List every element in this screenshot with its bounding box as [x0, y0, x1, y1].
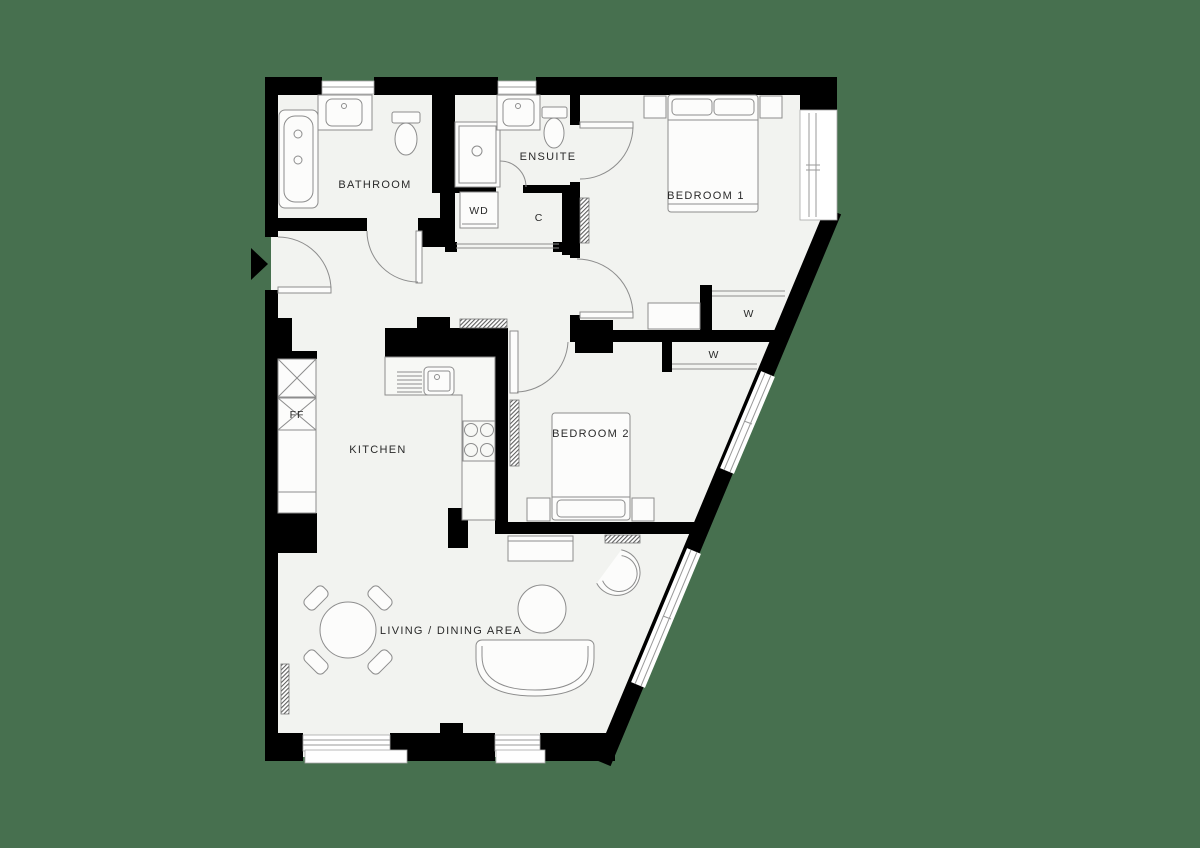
bedroom1-wardrobe-label: W [744, 308, 755, 320]
bedside-table [760, 96, 782, 118]
cupboard-label: C [535, 212, 544, 224]
bathroom-label: BATHROOM [338, 179, 411, 191]
bedroom1-dresser [648, 303, 700, 329]
bedroom2-label: BEDROOM 2 [552, 428, 630, 440]
living-dining-label: LIVING / DINING AREA [380, 625, 522, 637]
ensuite-window [498, 81, 536, 94]
floor-plan: BATHROOM ENSUITE WD C BEDROOM 1 W W KITC… [0, 0, 1200, 848]
bathroom-basin [318, 95, 372, 130]
ensuite-basin [497, 95, 540, 130]
living-bottom-window-right [495, 735, 545, 763]
bathroom-window [322, 81, 374, 94]
radiator [605, 535, 640, 543]
fridge-freezer-label: FF [290, 409, 305, 421]
ensuite-label: ENSUITE [520, 151, 577, 163]
radiator [510, 400, 519, 466]
dining-table [320, 602, 376, 658]
radiator [460, 319, 507, 328]
radiator [281, 664, 289, 714]
bedroom1-label: BEDROOM 1 [667, 190, 745, 202]
coffee-table [518, 585, 566, 633]
radiator [580, 198, 589, 243]
curved-sofa [476, 640, 594, 696]
tall-units-fridge-freezer [278, 359, 316, 513]
kitchen-label: KITCHEN [349, 444, 406, 456]
bathtub [279, 110, 318, 208]
bedroom2-wardrobe-label: W [709, 349, 720, 361]
bedside-table [644, 96, 666, 118]
bedroom1-window [800, 110, 837, 220]
tv-unit [508, 536, 573, 561]
bedside-table [527, 498, 550, 521]
bedside-table [632, 498, 654, 521]
wd-label: WD [469, 205, 489, 217]
